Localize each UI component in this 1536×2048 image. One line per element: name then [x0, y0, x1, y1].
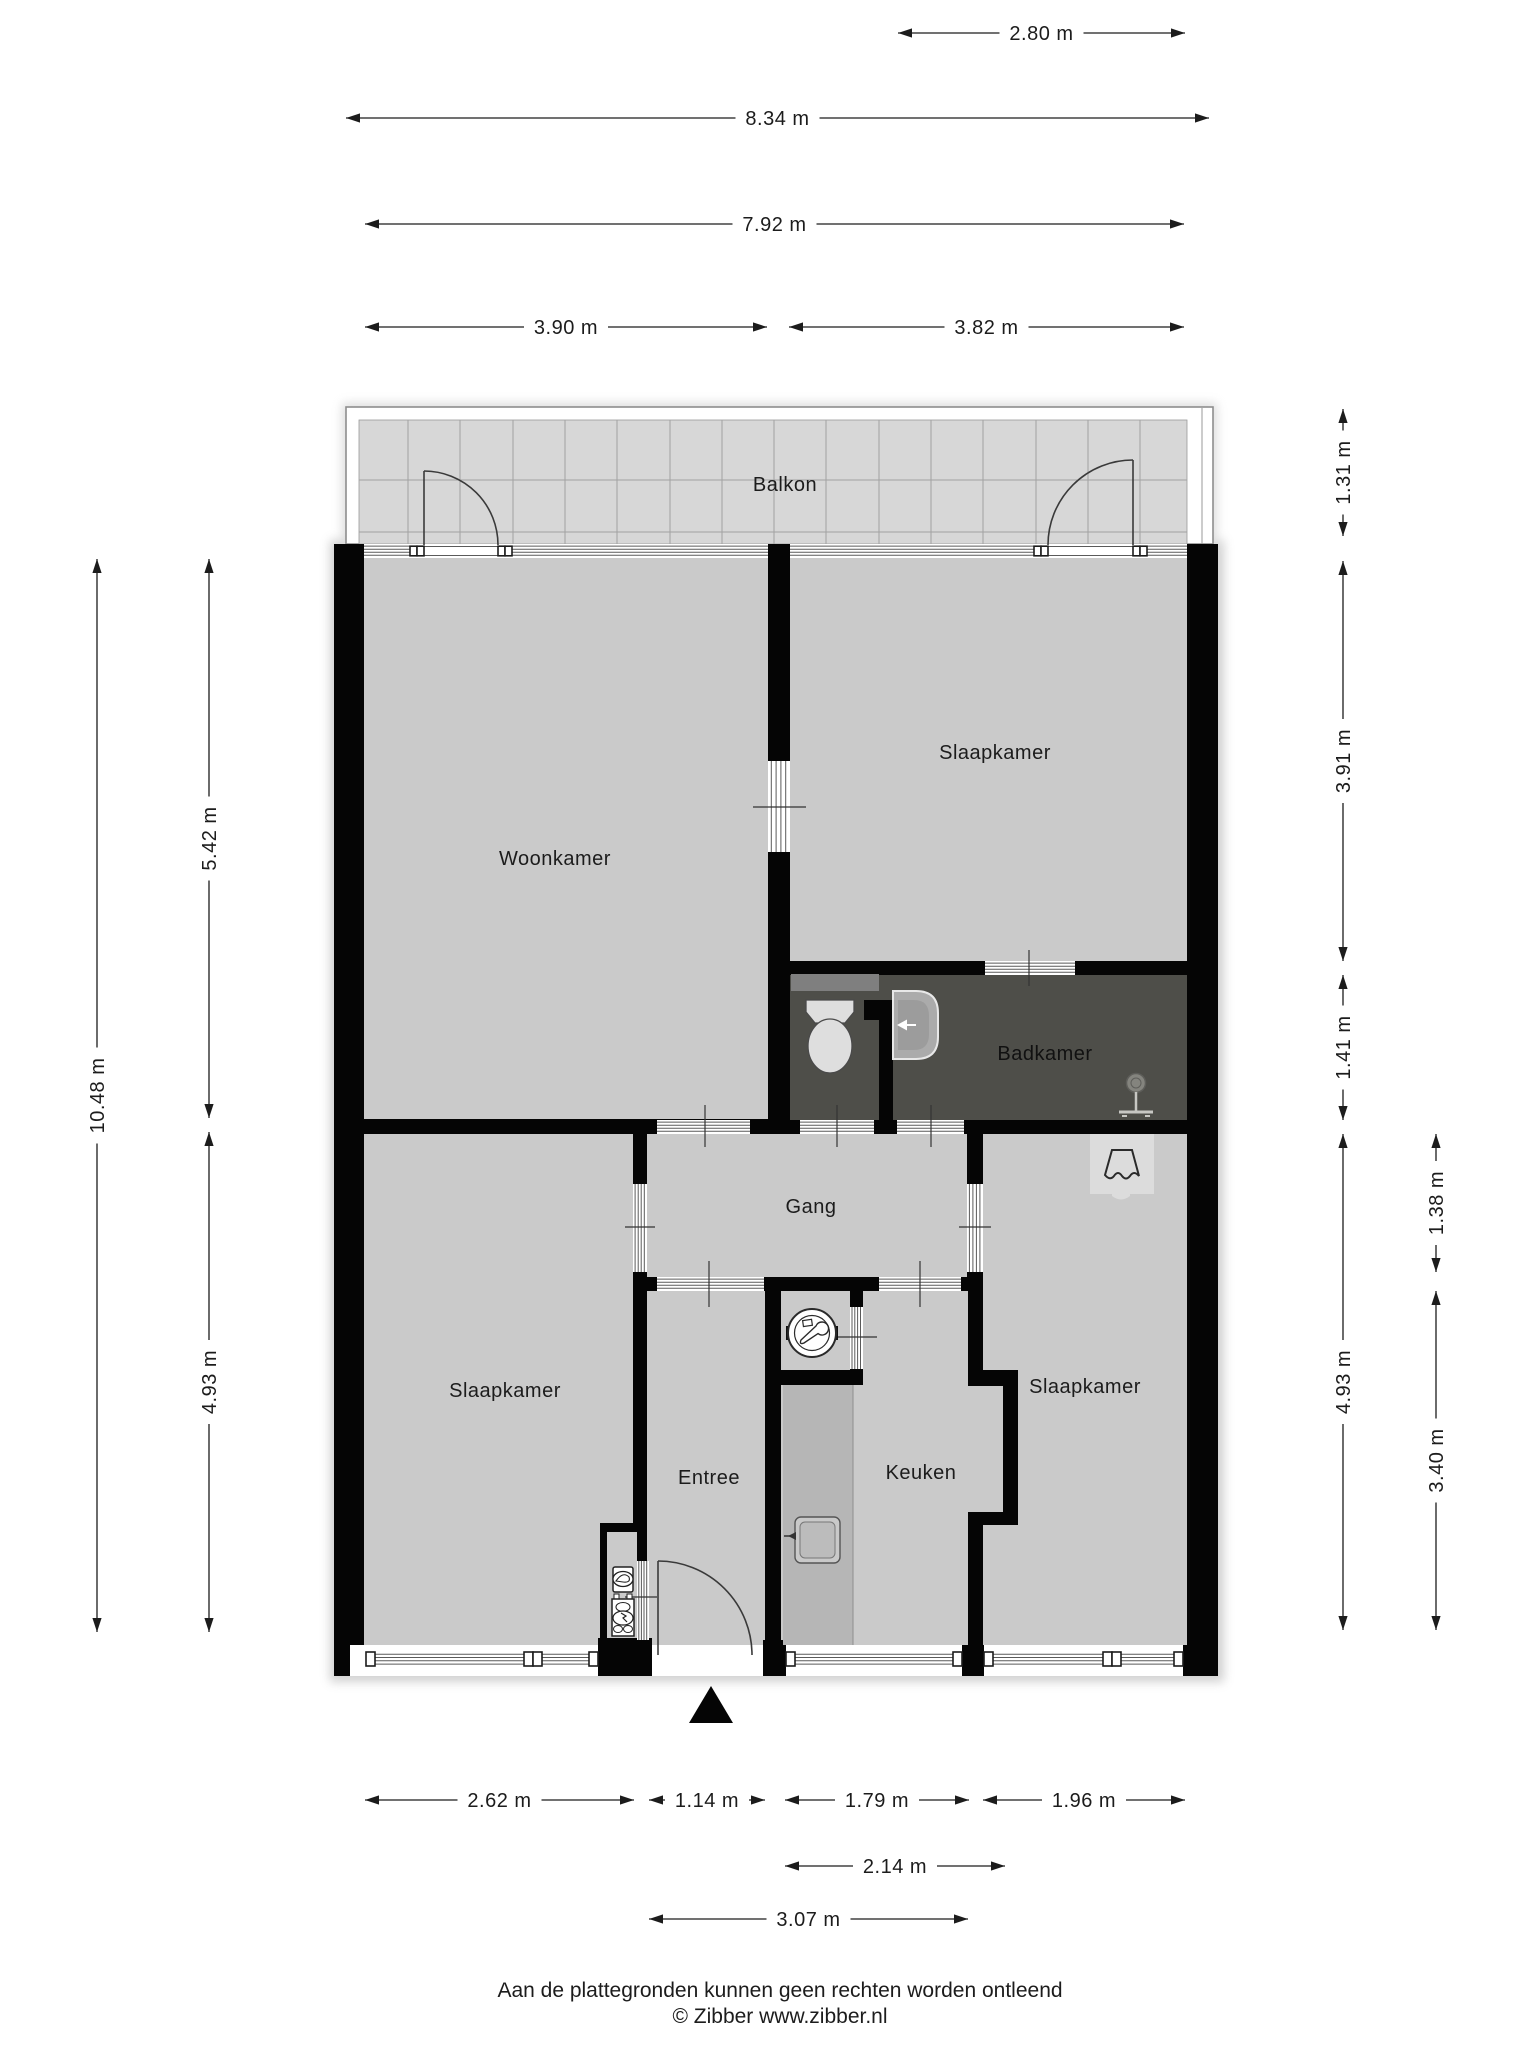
svg-text:Entree: Entree — [678, 1467, 740, 1489]
svg-text:Gang: Gang — [786, 1196, 837, 1218]
svg-text:4.93 m: 4.93 m — [1333, 1350, 1355, 1414]
svg-text:1.31 m: 1.31 m — [1333, 440, 1355, 504]
svg-text:Slaapkamer: Slaapkamer — [939, 742, 1051, 764]
svg-text:3.07 m: 3.07 m — [776, 1909, 840, 1931]
svg-text:7.92 m: 7.92 m — [742, 214, 806, 236]
svg-text:Slaapkamer: Slaapkamer — [449, 1380, 561, 1402]
svg-text:Woonkamer: Woonkamer — [499, 848, 611, 870]
svg-text:2.14 m: 2.14 m — [863, 1856, 927, 1878]
svg-text:2.62 m: 2.62 m — [467, 1790, 531, 1812]
svg-text:3.91 m: 3.91 m — [1333, 729, 1355, 793]
svg-text:10.48 m: 10.48 m — [87, 1058, 109, 1134]
svg-text:Keuken: Keuken — [886, 1462, 957, 1484]
svg-text:3.40 m: 3.40 m — [1426, 1428, 1448, 1492]
svg-text:5.42 m: 5.42 m — [199, 806, 221, 870]
svg-text:3.82 m: 3.82 m — [954, 317, 1018, 339]
svg-text:4.93 m: 4.93 m — [199, 1350, 221, 1414]
svg-text:2.80 m: 2.80 m — [1009, 23, 1073, 45]
svg-text:1.38 m: 1.38 m — [1426, 1171, 1448, 1235]
svg-text:1.41 m: 1.41 m — [1333, 1015, 1355, 1079]
svg-text:Slaapkamer: Slaapkamer — [1029, 1376, 1141, 1398]
svg-text:Badkamer: Badkamer — [997, 1043, 1092, 1065]
svg-text:Balkon: Balkon — [753, 474, 817, 496]
svg-text:8.34 m: 8.34 m — [745, 108, 809, 130]
svg-text:1.96 m: 1.96 m — [1052, 1790, 1116, 1812]
svg-text:1.79 m: 1.79 m — [845, 1790, 909, 1812]
svg-text:3.90 m: 3.90 m — [534, 317, 598, 339]
svg-text:1.14 m: 1.14 m — [675, 1790, 739, 1812]
svg-text:© Zibber www.zibber.nl: © Zibber www.zibber.nl — [672, 2005, 887, 2028]
svg-text:Aan de plattegronden kunnen ge: Aan de plattegronden kunnen geen rechten… — [497, 1979, 1062, 2002]
